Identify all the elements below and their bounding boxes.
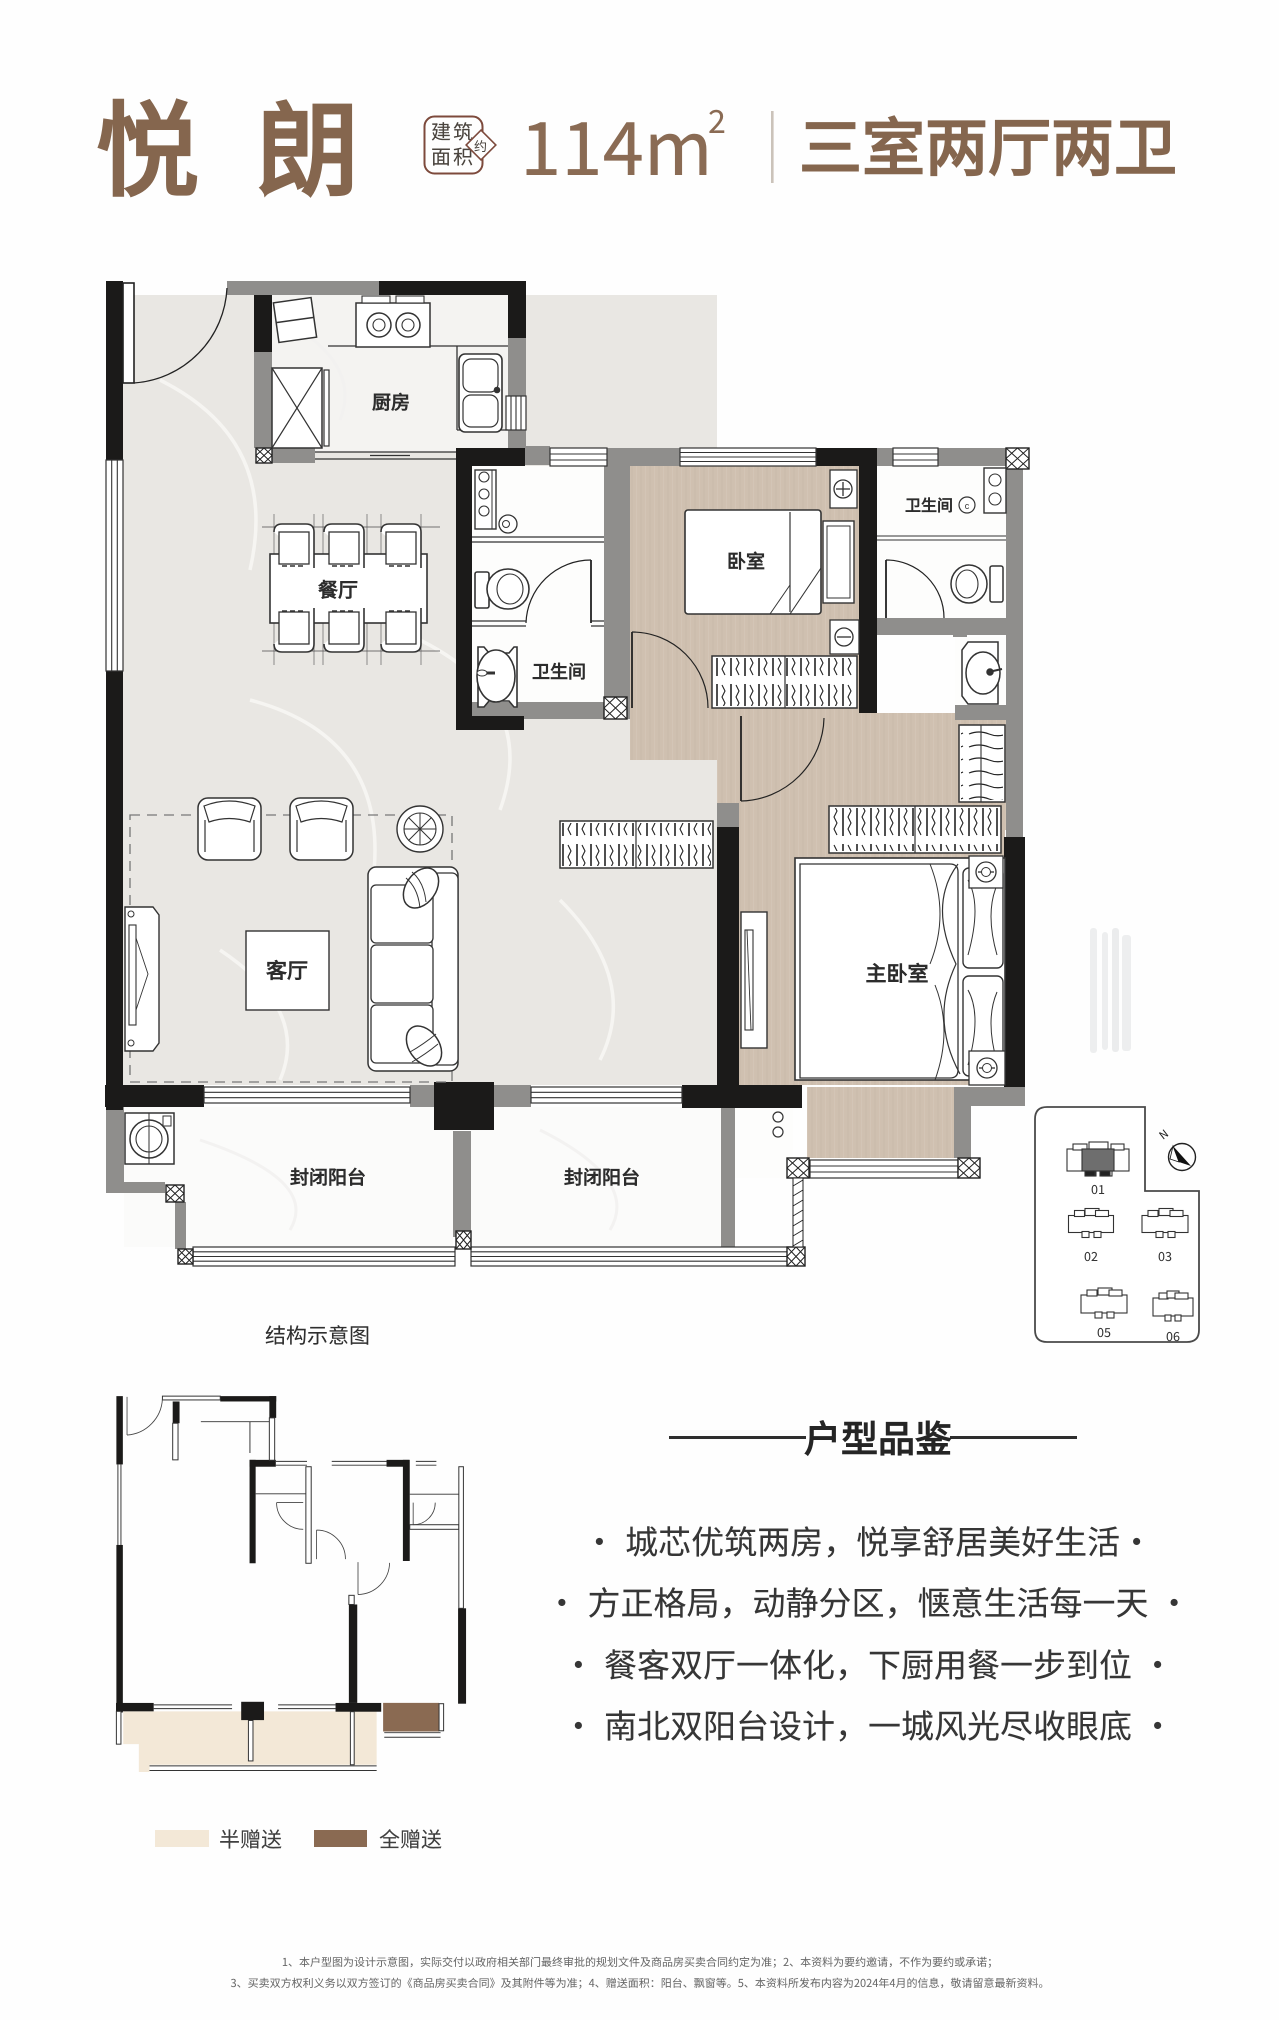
svg-text:封闭阳台: 封闭阳台 bbox=[290, 1163, 366, 1190]
svg-text:1、本户型图为设计示意图，实际交付以政府相关部门最终审批的规: 1、本户型图为设计示意图，实际交付以政府相关部门最终审批的规划文件及商品房买卖合… bbox=[282, 1954, 998, 1970]
svg-text:三室两厅两卫: 三室两厅两卫 bbox=[799, 98, 1177, 189]
svg-text:N: N bbox=[1156, 1126, 1172, 1144]
svg-text:厨房: 厨房 bbox=[372, 388, 410, 415]
svg-text:· 方正格局，动静分区，惬意生活每一天 ·: · 方正格局，动静分区，惬意生活每一天 · bbox=[545, 1577, 1190, 1625]
svg-text:05: 05 bbox=[1097, 1322, 1111, 1341]
svg-text:客厅: 客厅 bbox=[266, 955, 308, 985]
svg-text:半赠送: 半赠送 bbox=[219, 1824, 282, 1854]
svg-text:· 城芯优筑两房，悦享舒居美好生活·: · 城芯优筑两房，悦享舒居美好生活· bbox=[583, 1516, 1153, 1564]
svg-text:户型品鉴: 户型品鉴 bbox=[804, 1409, 952, 1463]
svg-text:02: 02 bbox=[1084, 1246, 1098, 1265]
svg-text:餐厅: 餐厅 bbox=[317, 574, 358, 603]
svg-text:2: 2 bbox=[708, 97, 726, 143]
svg-text:卫生间: 卫生间 bbox=[532, 658, 586, 684]
svg-text:114m: 114m bbox=[520, 90, 713, 197]
svg-text:03: 03 bbox=[1158, 1246, 1172, 1265]
svg-text:结构示意图: 结构示意图 bbox=[265, 1320, 370, 1350]
svg-text:· 餐客双厅一体化，下厨用餐一步到位 ·: · 餐客双厅一体化，下厨用餐一步到位 · bbox=[562, 1639, 1174, 1687]
svg-text:06: 06 bbox=[1166, 1326, 1180, 1345]
svg-text:主卧室: 主卧室 bbox=[866, 958, 929, 988]
svg-text:卫生间: 卫生间 bbox=[905, 492, 953, 516]
svg-text:· 南北双阳台设计，一城风光尽收眼底 ·: · 南北双阳台设计，一城风光尽收眼底 · bbox=[562, 1700, 1174, 1748]
svg-text:c: c bbox=[965, 499, 970, 512]
svg-text:3、买卖双方权利义务以双方签订的《商品房买卖合同》及其附件等: 3、买卖双方权利义务以双方签订的《商品房买卖合同》及其附件等为准；4、赠送面积：… bbox=[230, 1975, 1049, 1991]
svg-text:封闭阳台: 封闭阳台 bbox=[564, 1163, 640, 1190]
svg-text:约: 约 bbox=[474, 136, 487, 155]
svg-text:01: 01 bbox=[1091, 1179, 1105, 1198]
svg-text:全赠送: 全赠送 bbox=[379, 1824, 442, 1854]
svg-text:悦朗: 悦朗 bbox=[96, 68, 416, 217]
svg-text:卧室: 卧室 bbox=[727, 547, 765, 574]
